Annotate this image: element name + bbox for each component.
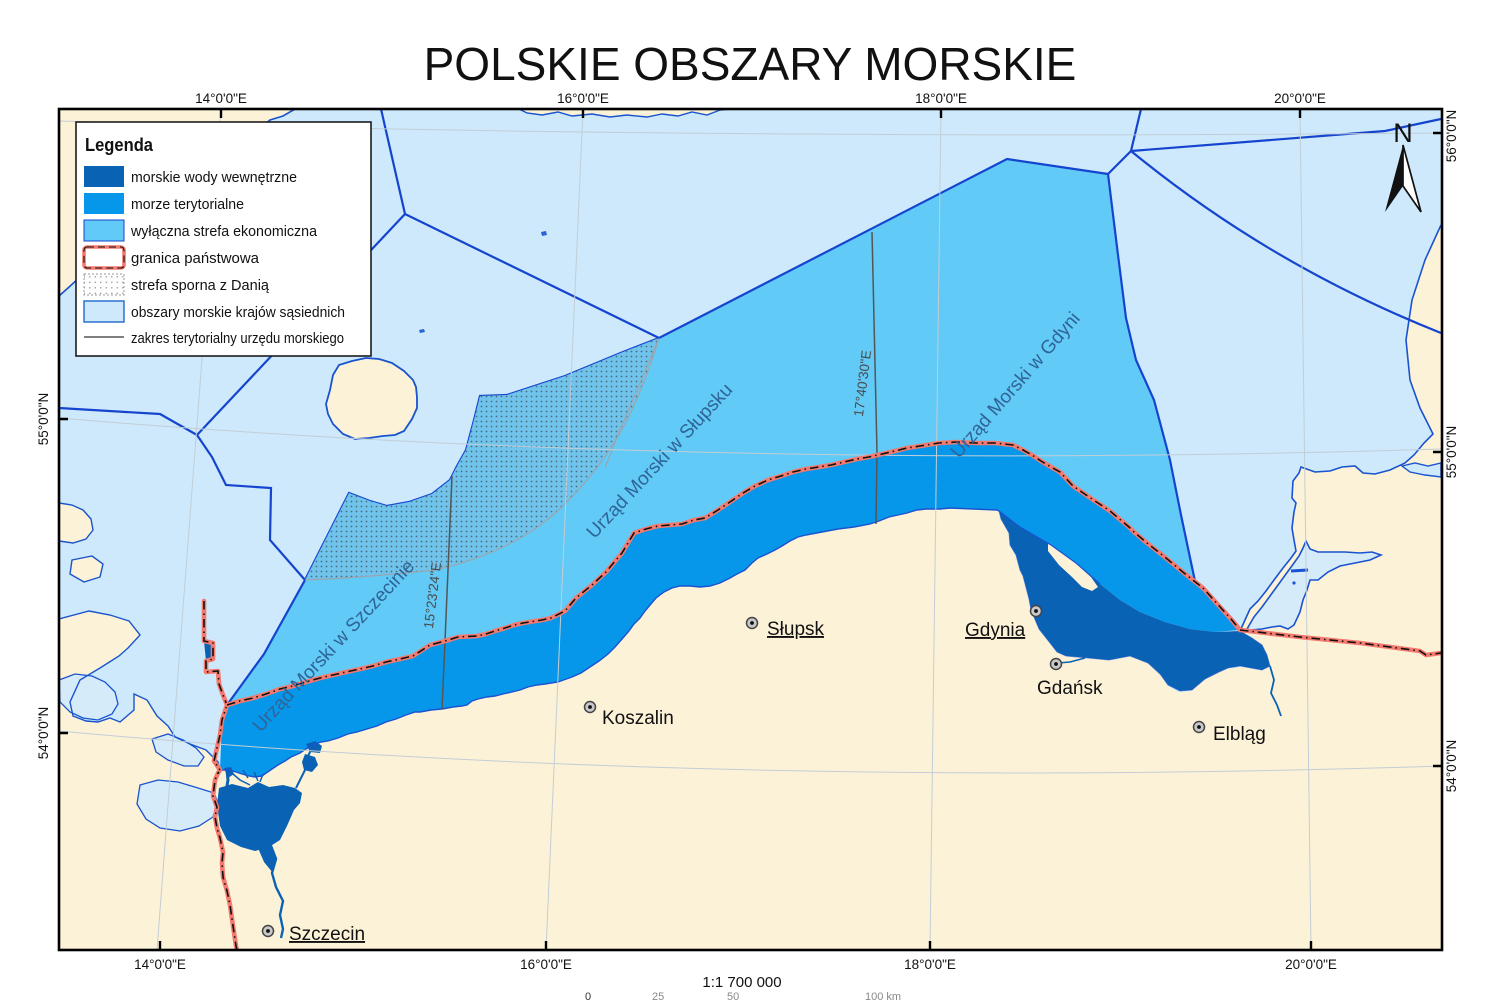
- svg-text:zakres terytorialny urzędu mor: zakres terytorialny urzędu morskiego: [131, 331, 344, 347]
- svg-text:Elbląg: Elbląg: [1213, 724, 1266, 745]
- svg-text:20°0'0"E: 20°0'0"E: [1274, 91, 1326, 106]
- svg-text:54°0'0"N: 54°0'0"N: [1444, 740, 1459, 793]
- svg-text:Legenda: Legenda: [85, 135, 154, 155]
- svg-text:Gdańsk: Gdańsk: [1037, 678, 1103, 699]
- svg-text:Słupsk: Słupsk: [767, 619, 825, 640]
- svg-text:POLSKIE OBSZARY MORSKIE: POLSKIE OBSZARY MORSKIE: [424, 38, 1077, 90]
- svg-text:morskie wody wewnętrzne: morskie wody wewnętrzne: [131, 170, 297, 186]
- svg-text:wyłączna strefa ekonomiczna: wyłączna strefa ekonomiczna: [130, 224, 318, 240]
- svg-text:granica państwowa: granica państwowa: [131, 251, 260, 267]
- svg-text:Szczecin: Szczecin: [289, 924, 365, 945]
- svg-text:0: 0: [585, 991, 591, 1000]
- svg-text:strefa sporna z Danią: strefa sporna z Danią: [131, 278, 270, 294]
- svg-text:18°0'0"E: 18°0'0"E: [904, 957, 956, 972]
- svg-text:54°0'0"N: 54°0'0"N: [36, 707, 51, 760]
- svg-text:16°0'0"E: 16°0'0"E: [520, 957, 572, 972]
- svg-text:55°0'0"N: 55°0'0"N: [36, 393, 51, 446]
- svg-text:20°0'0"E: 20°0'0"E: [1285, 957, 1337, 972]
- svg-text:100 km: 100 km: [865, 991, 901, 1000]
- svg-text:55°0'0"N: 55°0'0"N: [1444, 426, 1459, 479]
- svg-text:18°0'0"E: 18°0'0"E: [915, 91, 967, 106]
- svg-text:50: 50: [727, 991, 739, 1000]
- svg-text:1:1 700 000: 1:1 700 000: [702, 974, 781, 991]
- svg-text:14°0'0"E: 14°0'0"E: [195, 91, 247, 106]
- svg-text:N: N: [1393, 118, 1413, 148]
- svg-text:obszary morskie krajów sąsiedn: obszary morskie krajów sąsiednich: [131, 305, 345, 321]
- svg-text:14°0'0"E: 14°0'0"E: [134, 957, 186, 972]
- svg-text:25: 25: [652, 991, 664, 1000]
- svg-text:56°0'0"N: 56°0'0"N: [1444, 110, 1459, 163]
- svg-text:Koszalin: Koszalin: [602, 708, 674, 729]
- svg-text:16°0'0"E: 16°0'0"E: [557, 91, 609, 106]
- svg-text:morze terytorialne: morze terytorialne: [131, 197, 244, 213]
- svg-text:Gdynia: Gdynia: [965, 620, 1026, 641]
